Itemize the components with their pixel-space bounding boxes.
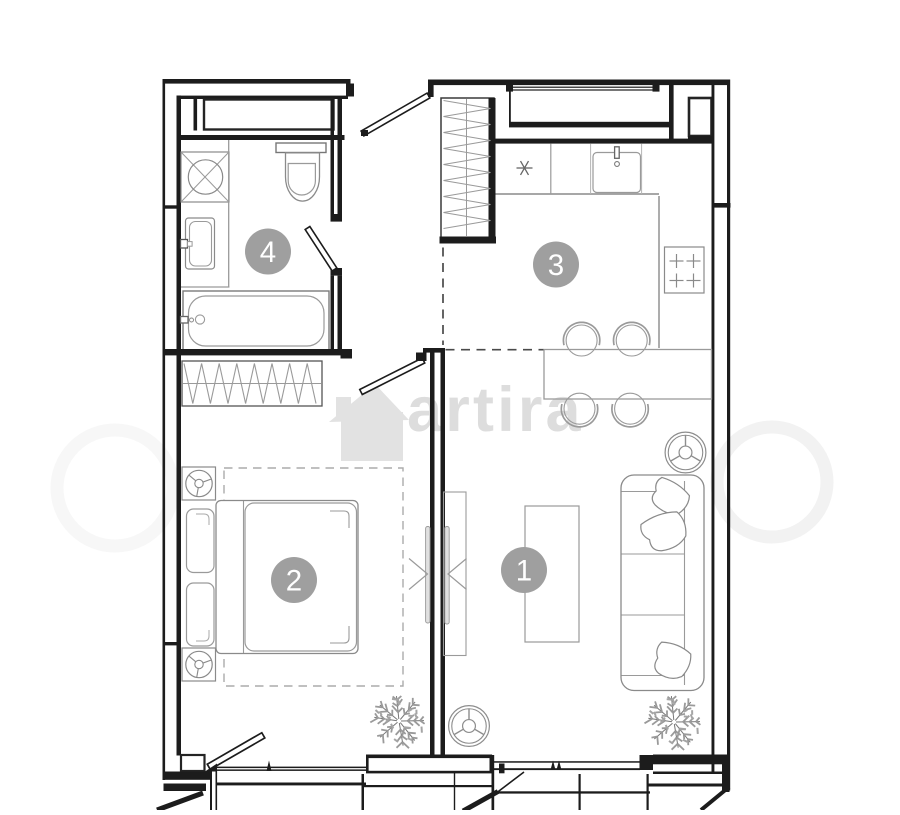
svg-text:4: 4 bbox=[260, 236, 276, 269]
svg-text:3: 3 bbox=[548, 249, 564, 282]
svg-text:2: 2 bbox=[286, 565, 302, 598]
svg-text:1: 1 bbox=[516, 555, 532, 588]
